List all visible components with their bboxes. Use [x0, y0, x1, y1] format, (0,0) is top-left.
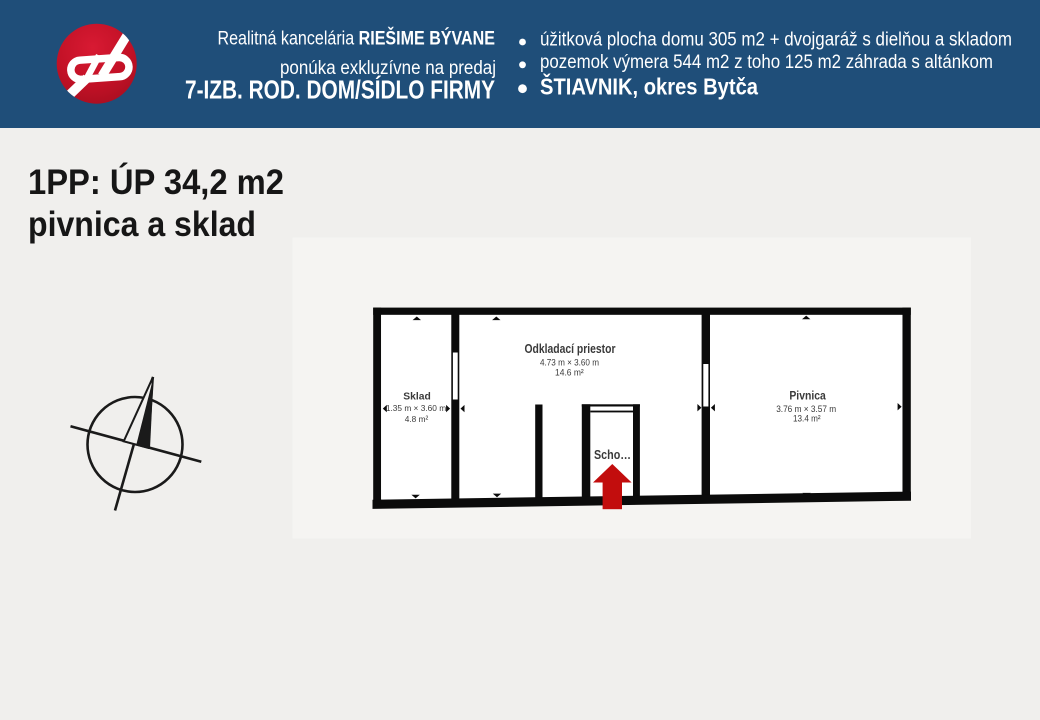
svg-text:1.35 m × 3.60 m: 1.35 m × 3.60 m — [386, 403, 446, 413]
svg-text:Sklad: Sklad — [403, 392, 431, 403]
svg-text:7-IZB. ROD. DOM/SÍDLO FIRMY: 7-IZB. ROD. DOM/SÍDLO FIRMY — [185, 76, 495, 105]
svg-text:13.4 m²: 13.4 m² — [793, 414, 821, 425]
svg-text:Scho…: Scho… — [594, 448, 631, 462]
svg-text:úžitková plocha domu 305 m2 +: úžitková plocha domu 305 m2 + dvojgaráž … — [540, 29, 1012, 50]
svg-text:ŠTIAVNIK, okres Bytča: ŠTIAVNIK, okres Bytča — [540, 73, 758, 100]
svg-text:pozemok výmera 544 m2 z toho 1: pozemok výmera 544 m2 z toho 125 m2 záhr… — [540, 52, 993, 73]
svg-text:4.8 m²: 4.8 m² — [405, 414, 429, 424]
svg-text:Pivnica: Pivnica — [789, 389, 826, 403]
svg-text:1PP: ÚP 34,2 m2: 1PP: ÚP 34,2 m2 — [28, 162, 284, 202]
svg-text:14.6 m²: 14.6 m² — [555, 367, 584, 378]
svg-text:Realitná kancelária RIEŠIME BÝ: Realitná kancelária RIEŠIME BÝVANE — [218, 28, 496, 50]
svg-text:pivnica a sklad: pivnica a sklad — [28, 205, 256, 244]
svg-text:Odkladací priestor: Odkladací priestor — [525, 342, 616, 356]
